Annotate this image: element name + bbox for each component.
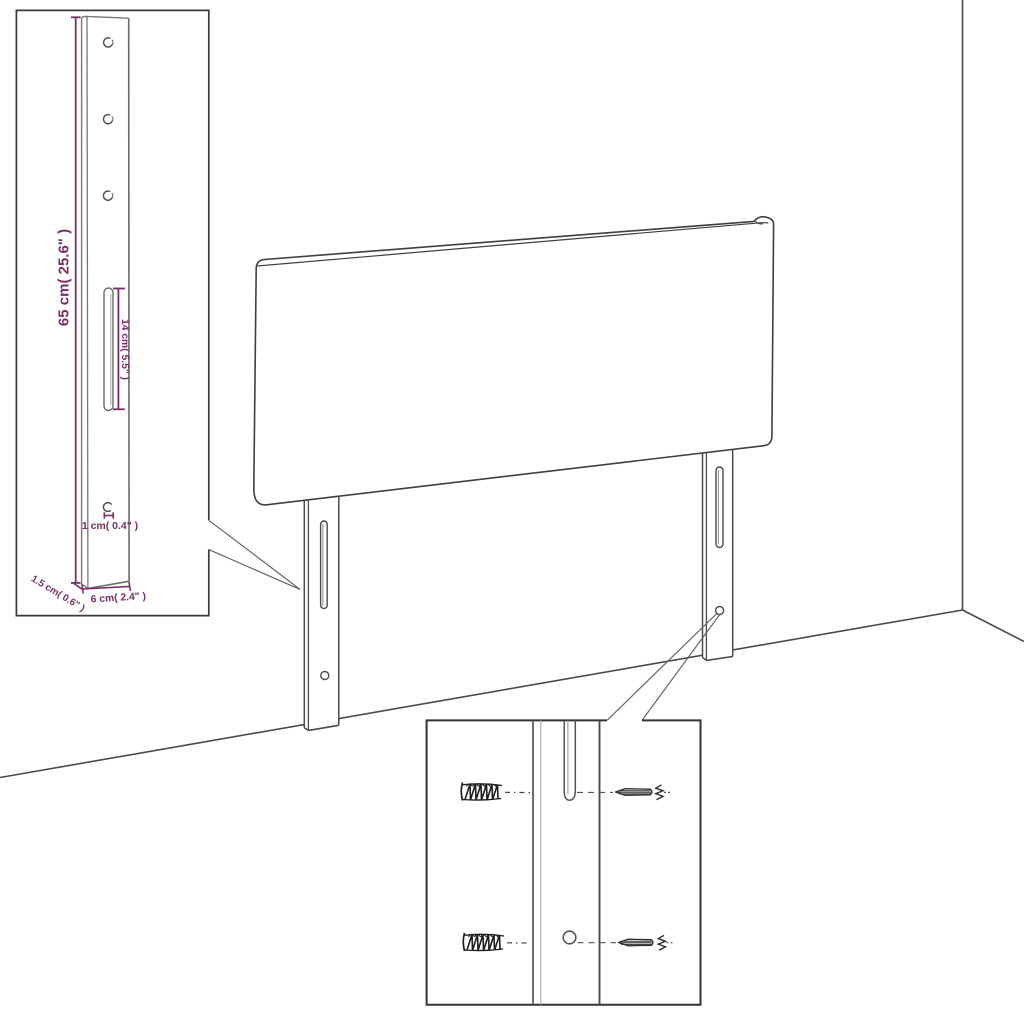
svg-text:65 cm( 25.6" ): 65 cm( 25.6" ) <box>55 229 72 326</box>
svg-text:1 cm( 0.4" ): 1 cm( 0.4" ) <box>82 520 138 532</box>
svg-text:14 cm( 5.5" ): 14 cm( 5.5" ) <box>119 319 130 380</box>
